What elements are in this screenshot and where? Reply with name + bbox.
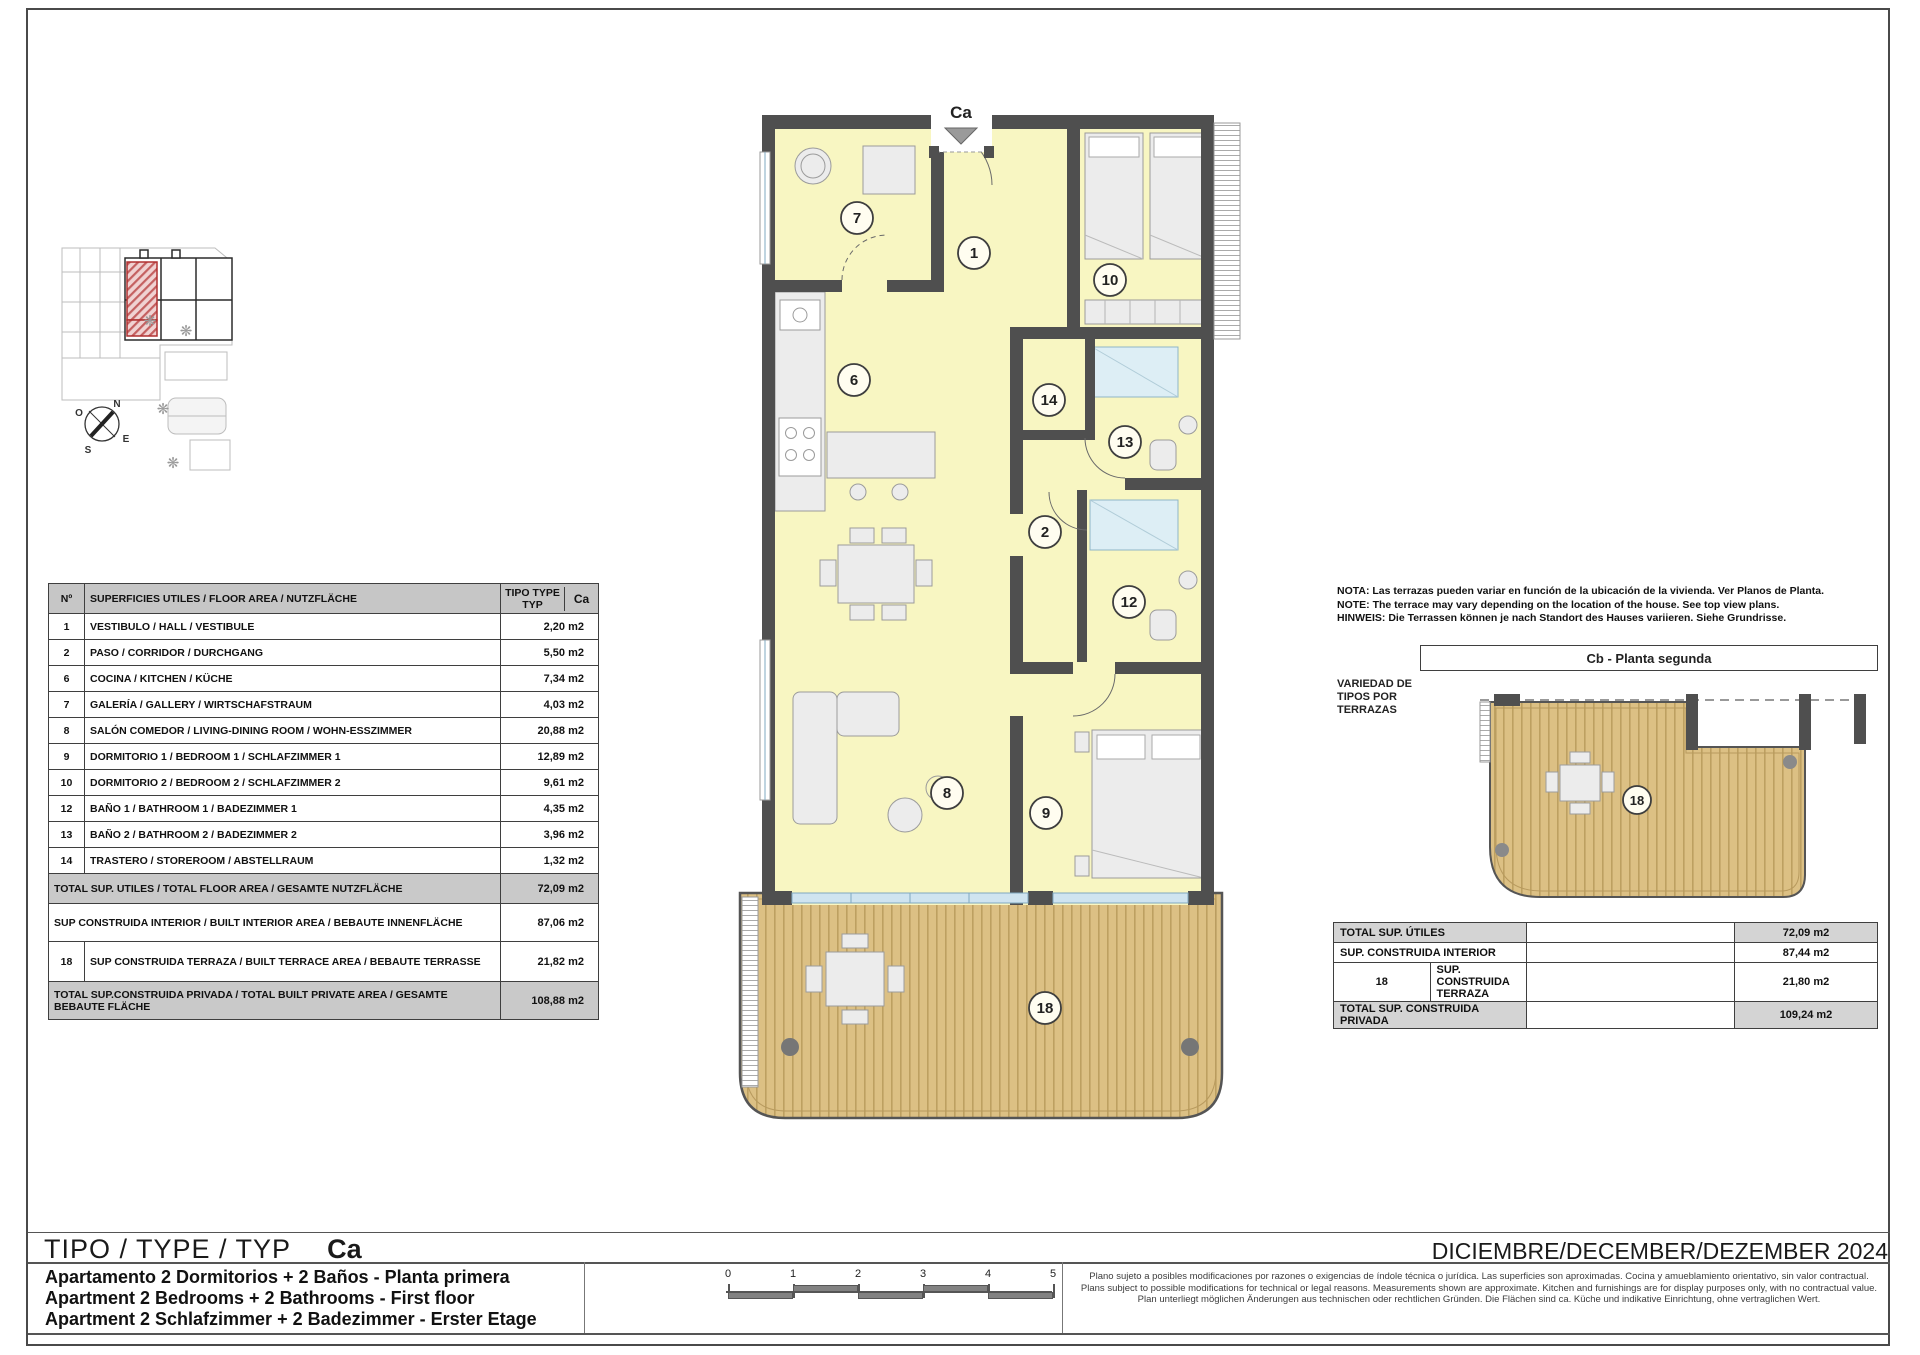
washing-machine	[795, 148, 831, 184]
svg-text:12: 12	[1121, 594, 1138, 611]
table-row: 1VESTIBULO / HALL / VESTIBULE2,20 m2	[49, 614, 599, 640]
terrace	[740, 893, 1222, 1118]
disclaimer-de: Plan unterliegt möglichen Änderungen aus…	[1075, 1294, 1883, 1306]
cb-row-utiles: TOTAL SUP. ÚTILES72,09 m2	[1334, 923, 1878, 943]
col-type: TIPO TYPE TYP Ca	[501, 584, 599, 614]
cb-row-privada: TOTAL SUP. CONSTRUIDA PRIVADA109,24 m2	[1334, 1002, 1878, 1029]
room-label-corridor: 2	[1029, 516, 1061, 548]
svg-text:❋: ❋	[157, 401, 170, 418]
compass-rose: N O E S	[60, 395, 150, 465]
total-utiles-row: TOTAL SUP. UTILES / TOTAL FLOOR AREA / G…	[49, 874, 599, 904]
toilet	[1150, 440, 1176, 470]
compass-s: S	[85, 445, 92, 456]
cb-plant-pot	[1495, 843, 1509, 857]
table-row: 2PASO / CORRIDOR / DURCHGANG5,50 m2	[49, 640, 599, 666]
titleblock-mid-rule	[28, 1262, 1890, 1264]
room-label-galeria: 7	[841, 202, 873, 234]
type-title: TIPO / TYPE / TYPCa	[44, 1234, 362, 1265]
entrance-marker: Ca	[929, 92, 994, 158]
col-type-label: TIPO TYPE TYP	[501, 587, 564, 611]
svg-text:14: 14	[1041, 392, 1058, 409]
col-variant-label: Ca	[564, 587, 598, 611]
svg-text:6: 6	[850, 372, 858, 389]
col-desc: SUPERFICIES UTILES / FLOOR AREA / NUTZFL…	[85, 584, 501, 614]
svg-text:13: 13	[1117, 434, 1134, 451]
room-label-living: 8	[931, 777, 963, 809]
note-line-de: HINWEIS: Die Terrassen können je nach St…	[1337, 612, 1889, 626]
entrance-label: Ca	[950, 103, 972, 122]
plan-sheet: ❋❋ ❋❋ N O E S Nº SUPERFICIES UTILES / FL…	[0, 0, 1920, 1355]
cb-table	[1560, 765, 1600, 801]
footer-divider	[1062, 1262, 1063, 1333]
room-label-bedroom2: 10	[1094, 264, 1126, 296]
total-private-row: TOTAL SUP.CONSTRUIDA PRIVADA / TOTAL BUI…	[49, 982, 599, 1020]
footer-divider	[584, 1262, 585, 1333]
pouf	[888, 798, 922, 832]
table-row: 10DORMITORIO 2 / BEDROOM 2 / SCHLAFZIMME…	[49, 770, 599, 796]
sofa	[793, 692, 837, 824]
table-row: 13BAÑO 2 / BATHROOM 2 / BADEZIMMER 23,96…	[49, 822, 599, 848]
hob	[779, 418, 821, 476]
toilet	[1150, 610, 1176, 640]
scale-bar: 0 1 2 3 4 5	[726, 1268, 1056, 1314]
room-label-bedroom1: 9	[1030, 797, 1062, 829]
built-terrace-row: 18SUP CONSTRUIDA TERRAZA / BUILT TERRACE…	[49, 942, 599, 982]
table-row: 7GALERÍA / GALLERY / WIRTSCHAFSTRAUM4,03…	[49, 692, 599, 718]
table-row: 9DORMITORIO 1 / BEDROOM 1 / SCHLAFZIMMER…	[49, 744, 599, 770]
disclaimer-es: Plano sujeto a posibles modificaciones p…	[1075, 1271, 1883, 1283]
room-label-terrace: 18	[1029, 992, 1061, 1024]
cb-plan-title: Cb - Planta segunda	[1420, 645, 1878, 671]
note-line-en: NOTE: The terrace may vary depending on …	[1337, 599, 1889, 613]
compass-e: E	[123, 434, 130, 445]
apartment-description: Apartamento 2 Dormitorios + 2 Baños - Pl…	[45, 1267, 537, 1330]
titleblock-top-rule	[28, 1232, 1890, 1233]
washbasin	[1179, 416, 1197, 434]
svg-text:18: 18	[1037, 1000, 1054, 1017]
col-num: Nº	[49, 584, 85, 614]
svg-text:2: 2	[1041, 524, 1049, 541]
note-line-es: NOTA: Las terrazas pueden variar en func…	[1337, 585, 1889, 599]
cb-terrace-label: 18	[1623, 786, 1651, 814]
areas-header-row: Nº SUPERFICIES UTILES / FLOOR AREA / NUT…	[49, 584, 599, 614]
terrace-louvers	[742, 897, 758, 1087]
bedroom-window	[1053, 893, 1188, 903]
terrace-table	[826, 952, 884, 1006]
terrace-note: NOTA: Las terrazas pueden variar en func…	[1337, 585, 1889, 626]
description-es: Apartamento 2 Dormitorios + 2 Baños - Pl…	[45, 1267, 537, 1288]
cb-plant-pot	[1783, 755, 1797, 769]
built-interior-row: SUP CONSTRUIDA INTERIOR / BUILT INTERIOR…	[49, 904, 599, 942]
washbasin	[1179, 571, 1197, 589]
wardrobe	[1085, 300, 1210, 324]
cb-terrace-plan: 18	[1420, 672, 1878, 920]
table-row: 14TRASTERO / STOREROOM / ABSTELLRAUM1,32…	[49, 848, 599, 874]
type-label: TIPO / TYPE / TYP	[44, 1234, 291, 1264]
cb-summary-table: TOTAL SUP. ÚTILES72,09 m2 SUP. CONSTRUID…	[1333, 922, 1878, 1029]
areas-table: Nº SUPERFICIES UTILES / FLOOR AREA / NUT…	[48, 583, 599, 1020]
room-label-kitchen: 6	[838, 364, 870, 396]
table-row: 6COCINA / KITCHEN / KÜCHE7,34 m2	[49, 666, 599, 692]
dining-table	[838, 545, 914, 603]
legal-disclaimer: Plano sujeto a posibles modificaciones p…	[1075, 1271, 1883, 1306]
svg-text:7: 7	[853, 210, 861, 227]
plant-pot	[1181, 1038, 1199, 1056]
titleblock-bottom-rule	[28, 1333, 1890, 1335]
svg-text:9: 9	[1042, 805, 1050, 822]
disclaimer-en: Plans subject to possible modifications …	[1075, 1283, 1883, 1295]
svg-text:18: 18	[1630, 793, 1644, 808]
plant-pot	[781, 1038, 799, 1056]
date-label: DICIEMBRE/DECEMBER/DEZEMBER 2024	[1432, 1238, 1888, 1265]
description-de: Apartment 2 Schlafzimmer + 2 Badezimmer …	[45, 1309, 537, 1330]
room-label-bathroom1: 12	[1113, 586, 1145, 618]
cb-row-terraza: 18SUP. CONSTRUIDA TERRAZA21,80 m2	[1334, 963, 1878, 1002]
side-louvers	[1214, 123, 1240, 339]
table-row: 12BAÑO 1 / BATHROOM 1 / BADEZIMMER 14,35…	[49, 796, 599, 822]
svg-text:1: 1	[970, 245, 978, 262]
table-row: 8SALÓN COMEDOR / LIVING-DINING ROOM / WO…	[49, 718, 599, 744]
svg-text:❋: ❋	[144, 313, 157, 330]
svg-text:❋: ❋	[167, 455, 180, 472]
kitchen-island	[827, 432, 935, 478]
floor-plan: Ca 7 1 10 6 14 13 2 12 8 9 18	[735, 88, 1255, 1150]
compass-n: N	[113, 399, 120, 410]
room-label-bathroom2: 13	[1109, 426, 1141, 458]
cb-row-interior: SUP. CONSTRUIDA INTERIOR87,44 m2	[1334, 943, 1878, 963]
compass-o: O	[75, 408, 83, 419]
description-en: Apartment 2 Bedrooms + 2 Bathrooms - Fir…	[45, 1288, 537, 1309]
cb-side-label: VARIEDAD DE TIPOS POR TERRAZAS	[1337, 678, 1423, 717]
type-code: Ca	[327, 1234, 362, 1264]
svg-text:10: 10	[1102, 272, 1119, 289]
room-label-storeroom: 14	[1033, 384, 1065, 416]
svg-text:❋: ❋	[180, 323, 193, 340]
room-label-hall: 1	[958, 237, 990, 269]
svg-text:8: 8	[943, 785, 951, 802]
